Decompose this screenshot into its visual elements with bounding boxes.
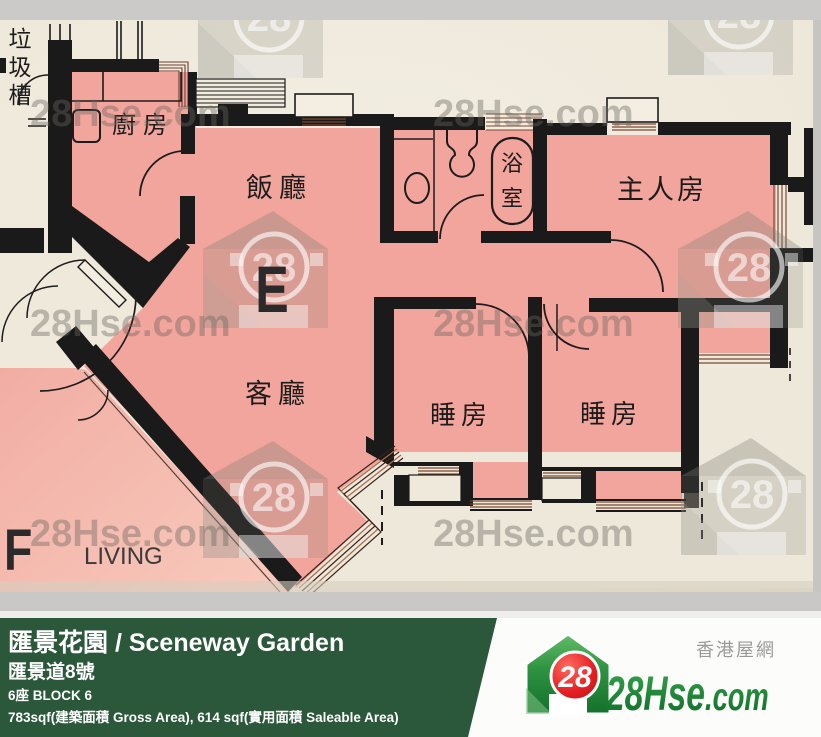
svg-text:主人房: 主人房 — [617, 175, 707, 205]
svg-text:匯景道8號: 匯景道8號 — [8, 660, 95, 683]
svg-text:客廳: 客廳 — [245, 379, 311, 409]
svg-text:垃: 垃 — [9, 26, 32, 52]
svg-text:睡房: 睡房 — [430, 400, 492, 430]
svg-text:E: E — [255, 253, 288, 326]
svg-text:28Hse.com: 28Hse.com — [30, 303, 231, 345]
svg-text:28: 28 — [557, 661, 592, 694]
svg-text:F: F — [4, 518, 32, 583]
svg-text:783sqf(建築面積 Gross Area), 614 s: 783sqf(建築面積 Gross Area), 614 sqf(實用面積 Sa… — [8, 709, 399, 725]
svg-text:6座 BLOCK 6: 6座 BLOCK 6 — [8, 687, 93, 703]
svg-text:28Hse.com: 28Hse.com — [433, 513, 634, 555]
svg-text:睡房: 睡房 — [580, 399, 642, 429]
svg-text:28Hse.com: 28Hse.com — [433, 93, 634, 135]
svg-text:香港屋網: 香港屋網 — [696, 640, 776, 660]
svg-text:28Hse.com: 28Hse.com — [433, 303, 634, 345]
svg-text:28Hse.com: 28Hse.com — [30, 93, 231, 135]
svg-text:匯景花園 / Sceneway Garden: 匯景花園 / Sceneway Garden — [8, 629, 344, 657]
svg-text:圾: 圾 — [9, 54, 32, 80]
svg-text:飯廳: 飯廳 — [246, 173, 312, 203]
svg-text:LIVING: LIVING — [84, 543, 163, 570]
svg-text:室: 室 — [501, 186, 523, 211]
svg-text:浴: 浴 — [501, 151, 523, 176]
